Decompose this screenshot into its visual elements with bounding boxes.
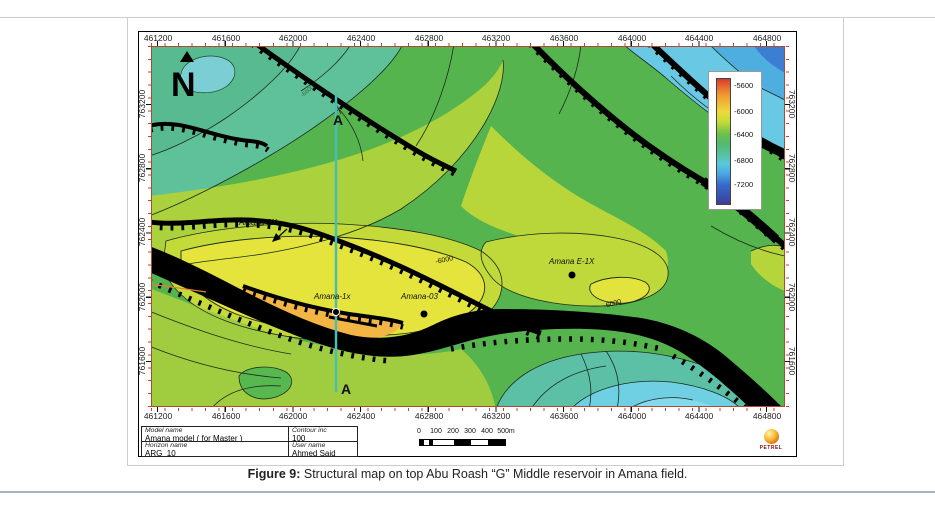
color-scale-label: -6800 bbox=[734, 156, 753, 165]
info-value: Ahmed Said bbox=[292, 450, 354, 456]
x-tick-label: 462800 bbox=[407, 33, 451, 43]
well-label-amanaE1x: Amana E-1X bbox=[548, 257, 595, 266]
petrel-logo-icon bbox=[764, 429, 779, 444]
x-tick-label: 461600 bbox=[204, 33, 248, 43]
petrel-logo: PETREL bbox=[750, 429, 792, 451]
x-tick-label: 463600 bbox=[542, 33, 586, 43]
well-marker-amanaE1x bbox=[569, 272, 576, 279]
x-tick-label: 463200 bbox=[474, 411, 518, 421]
section-label-a-top: A bbox=[333, 112, 343, 128]
color-scale-label: -6400 bbox=[734, 130, 753, 139]
y-tick-label: 762400 bbox=[137, 212, 147, 252]
bottom-divider bbox=[0, 491, 935, 493]
info-cell-model: Model name Amana model ( for Master ) bbox=[142, 427, 289, 442]
x-tick-label: 463200 bbox=[474, 33, 518, 43]
y-tick-label: 762400 bbox=[787, 212, 797, 252]
figure-frame-left bbox=[127, 17, 128, 466]
y-tick-label: 761600 bbox=[787, 341, 797, 381]
figure-caption: Figure 9: Structural map on top Abu Roas… bbox=[0, 467, 935, 481]
x-tick-label: 461200 bbox=[136, 411, 180, 421]
x-tick-label: 464400 bbox=[677, 411, 721, 421]
figure-frame-right bbox=[843, 17, 844, 466]
info-cell-user: User name Ahmed Said bbox=[289, 442, 357, 456]
info-value: Amana model ( for Master ) bbox=[145, 435, 285, 442]
x-tick-label: 462400 bbox=[339, 33, 383, 43]
y-tick-label: 762800 bbox=[787, 148, 797, 188]
figure-caption-text: Structural map on top Abu Roash “G” Midd… bbox=[300, 467, 687, 481]
color-scale-legend: -5600 -6000 -6400 -6800 -7200 bbox=[708, 71, 762, 210]
info-value: ARG_10 bbox=[145, 450, 285, 456]
section-label-a-bottom: A bbox=[341, 381, 351, 397]
x-tick-label: 462000 bbox=[271, 411, 315, 421]
color-scale-label: -5600 bbox=[734, 81, 753, 90]
map-canvas: N A A Amana-2X Amana-1x Amana-03 Amana E… bbox=[151, 46, 785, 407]
well-label-amana03: Amana-03 bbox=[400, 292, 438, 301]
color-scale-label: -6000 bbox=[734, 107, 753, 116]
well-marker-amana1x bbox=[333, 309, 340, 316]
scalebar-bar bbox=[419, 439, 506, 446]
y-tick-label: 762000 bbox=[787, 277, 797, 317]
info-cell-contour: Contour inc 100 bbox=[289, 427, 357, 442]
top-divider bbox=[0, 17, 935, 18]
petrel-logo-text: PETREL bbox=[750, 445, 792, 451]
figure-frame-bottom bbox=[127, 465, 844, 466]
figure-caption-number: Figure 9: bbox=[248, 467, 301, 481]
map-scalebar: 0 100 200 300 400 500m bbox=[417, 428, 537, 450]
x-tick-label: 464400 bbox=[677, 33, 721, 43]
structural-map: N A A Amana-2X Amana-1x Amana-03 Amana E… bbox=[151, 46, 785, 407]
scalebar-label: 500m bbox=[495, 428, 517, 435]
info-value: 100 bbox=[292, 435, 354, 442]
x-tick-label: 461200 bbox=[136, 33, 180, 43]
map-info-table: Model name Amana model ( for Master ) Co… bbox=[141, 426, 358, 457]
x-tick-label: 462000 bbox=[271, 33, 315, 43]
map-layers: N A A Amana-2X Amana-1x Amana-03 Amana E… bbox=[149, 40, 786, 414]
x-tick-label: 463600 bbox=[542, 411, 586, 421]
x-tick-label: 461600 bbox=[204, 411, 248, 421]
color-scale-gradient bbox=[716, 78, 731, 205]
well-label-amana1x: Amana-1x bbox=[313, 292, 351, 301]
y-tick-label: 762000 bbox=[137, 277, 147, 317]
x-tick-label: 462800 bbox=[407, 411, 451, 421]
y-tick-label: 762800 bbox=[137, 148, 147, 188]
well-marker-amana03 bbox=[421, 311, 428, 318]
x-tick-label: 464800 bbox=[745, 33, 789, 43]
x-tick-label: 464000 bbox=[610, 411, 654, 421]
x-tick-label: 464000 bbox=[610, 33, 654, 43]
y-tick-label: 763200 bbox=[787, 84, 797, 124]
color-scale-label: -7200 bbox=[734, 180, 753, 189]
well-label-amana2x: Amana-2X bbox=[238, 218, 277, 227]
y-tick-label: 761600 bbox=[137, 341, 147, 381]
y-tick-label: 763200 bbox=[137, 84, 147, 124]
info-cell-horizon: Horizon name ARG_10 bbox=[142, 442, 289, 456]
figure-page: N A A Amana-2X Amana-1x Amana-03 Amana E… bbox=[0, 0, 935, 505]
x-tick-label: 464800 bbox=[745, 411, 789, 421]
north-label: N bbox=[171, 66, 196, 104]
x-tick-label: 462400 bbox=[339, 411, 383, 421]
